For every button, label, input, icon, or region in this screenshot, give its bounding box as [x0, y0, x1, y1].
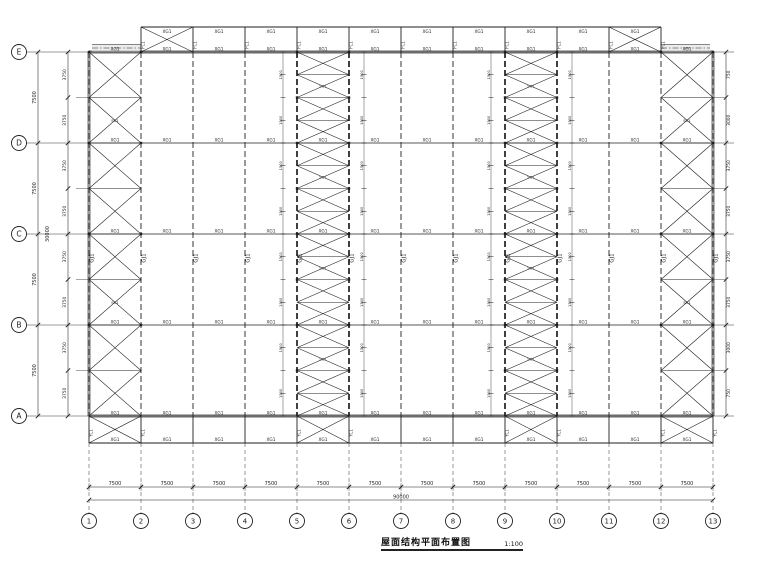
- svg-text:3750: 3750: [62, 251, 68, 262]
- svg-text:XG1: XG1: [318, 410, 327, 416]
- svg-text:XG1: XG1: [682, 228, 691, 234]
- svg-text:XG1: XG1: [162, 46, 171, 52]
- roof-plan-svg: XG1XG1XG1XG1XG1XG1XG1XG1XG1XG1FC1FC1FC1F…: [0, 0, 760, 567]
- svg-text:90000: 90000: [393, 495, 409, 501]
- svg-text:1500: 1500: [568, 115, 572, 125]
- svg-text:3750: 3750: [726, 296, 732, 307]
- svg-text:3750: 3750: [726, 205, 732, 216]
- svg-text:B: B: [16, 321, 21, 330]
- svg-text:GJ1: GJ1: [194, 253, 200, 262]
- svg-text:YC1: YC1: [349, 429, 354, 438]
- svg-text:GJ1: GJ1: [558, 253, 564, 262]
- svg-text:6: 6: [347, 518, 352, 526]
- svg-text:XG1: XG1: [318, 228, 327, 234]
- svg-text:GJ1: GJ1: [454, 253, 460, 262]
- drawing-title-block: 屋面结构平面布置图 1:100: [381, 535, 523, 551]
- svg-text:XG1: XG1: [162, 437, 171, 443]
- svg-text:3000: 3000: [726, 114, 732, 125]
- svg-text:XG1: XG1: [682, 46, 691, 52]
- svg-text:1500: 1500: [360, 160, 364, 170]
- svg-text:XG1: XG1: [526, 437, 535, 443]
- svg-text:XG1: XG1: [370, 319, 379, 325]
- svg-text:XG1: XG1: [526, 46, 535, 52]
- svg-text:1500: 1500: [487, 342, 491, 352]
- svg-text:XG1: XG1: [578, 437, 587, 443]
- svg-text:YC1: YC1: [661, 429, 666, 438]
- svg-text:XG1: XG1: [162, 137, 171, 143]
- svg-text:3: 3: [191, 518, 195, 526]
- svg-text:7500: 7500: [681, 481, 694, 487]
- svg-text:1500: 1500: [360, 115, 364, 125]
- svg-text:7500: 7500: [577, 481, 590, 487]
- svg-text:SC1: SC1: [527, 175, 535, 180]
- svg-text:1500: 1500: [568, 297, 572, 307]
- svg-text:XG1: XG1: [474, 437, 483, 443]
- svg-text:XG1: XG1: [474, 46, 483, 52]
- svg-text:XG1: XG1: [474, 137, 483, 143]
- svg-text:XG1: XG1: [266, 319, 275, 325]
- svg-text:3750: 3750: [62, 387, 68, 398]
- svg-text:XG1: XG1: [578, 410, 587, 416]
- svg-text:XG1: XG1: [422, 228, 431, 234]
- svg-text:GJ1: GJ1: [662, 253, 668, 262]
- svg-text:SC1: SC1: [319, 266, 327, 271]
- svg-text:XG1: XG1: [370, 437, 379, 443]
- svg-text:XG1: XG1: [370, 228, 379, 234]
- svg-text:XG1: XG1: [318, 319, 327, 325]
- svg-text:7500: 7500: [32, 91, 38, 104]
- svg-text:YC1: YC1: [141, 429, 146, 438]
- svg-text:XG1: XG1: [214, 437, 223, 443]
- svg-text:7500: 7500: [525, 481, 538, 487]
- svg-text:GJ1: GJ1: [350, 253, 356, 262]
- svg-text:XG1: XG1: [526, 319, 535, 325]
- svg-text:XG1: XG1: [578, 46, 587, 52]
- svg-text:XG1: XG1: [474, 319, 483, 325]
- svg-text:XG1: XG1: [214, 319, 223, 325]
- svg-text:SC1: SC1: [683, 300, 691, 305]
- svg-text:1500: 1500: [568, 251, 572, 261]
- svg-text:GJ1: GJ1: [246, 253, 252, 262]
- svg-text:3750: 3750: [726, 251, 732, 262]
- drawing-title: 屋面结构平面布置图: [381, 535, 471, 548]
- svg-text:FC1: FC1: [141, 41, 146, 49]
- svg-text:YC1: YC1: [89, 429, 94, 438]
- svg-text:FC1: FC1: [609, 41, 614, 49]
- svg-text:XG1: XG1: [578, 137, 587, 143]
- svg-text:XG1: XG1: [474, 29, 483, 35]
- svg-text:FC1: FC1: [297, 41, 302, 49]
- svg-text:SC1: SC1: [527, 266, 535, 271]
- svg-text:FC1: FC1: [505, 41, 510, 49]
- svg-text:XG1: XG1: [630, 137, 639, 143]
- svg-text:XG1: XG1: [266, 228, 275, 234]
- svg-text:1500: 1500: [360, 342, 364, 352]
- svg-text:XG1: XG1: [526, 137, 535, 143]
- svg-text:1500: 1500: [360, 206, 364, 216]
- drawing-scale: 1:100: [504, 540, 523, 548]
- svg-text:XG1: XG1: [110, 46, 119, 52]
- svg-text:3750: 3750: [62, 114, 68, 125]
- svg-text:FC1: FC1: [245, 41, 250, 49]
- svg-text:YC1: YC1: [297, 429, 302, 438]
- svg-text:1500: 1500: [279, 297, 283, 307]
- svg-text:XG1: XG1: [578, 228, 587, 234]
- svg-text:SC1: SC1: [319, 84, 327, 89]
- svg-text:XG1: XG1: [422, 437, 431, 443]
- svg-text:3750: 3750: [62, 160, 68, 171]
- svg-text:1500: 1500: [360, 297, 364, 307]
- svg-text:XG1: XG1: [266, 29, 275, 35]
- svg-text:XG1: XG1: [682, 410, 691, 416]
- svg-text:XG1: XG1: [162, 228, 171, 234]
- svg-text:7: 7: [399, 518, 403, 526]
- svg-text:XG1: XG1: [630, 437, 639, 443]
- svg-text:XG1: XG1: [422, 137, 431, 143]
- svg-text:XG1: XG1: [422, 410, 431, 416]
- svg-text:8: 8: [451, 518, 455, 526]
- svg-text:SC1: SC1: [527, 84, 535, 89]
- svg-text:1: 1: [87, 518, 91, 526]
- svg-text:XG1: XG1: [630, 319, 639, 325]
- svg-text:E: E: [17, 48, 22, 57]
- lower-band: XG1XG1XG1XG1XG1XG1XG1XG1XG1XG1XG1XG1YC1Y…: [89, 416, 718, 443]
- svg-text:1500: 1500: [568, 342, 572, 352]
- svg-text:XG1: XG1: [318, 46, 327, 52]
- svg-text:FC1: FC1: [453, 41, 458, 49]
- svg-text:XG1: XG1: [266, 46, 275, 52]
- svg-text:XG1: XG1: [422, 46, 431, 52]
- svg-text:1500: 1500: [279, 206, 283, 216]
- svg-text:FC1: FC1: [557, 41, 562, 49]
- svg-text:1500: 1500: [568, 388, 572, 398]
- svg-text:XG1: XG1: [214, 46, 223, 52]
- svg-text:XG1: XG1: [162, 319, 171, 325]
- svg-text:1500: 1500: [279, 69, 283, 79]
- svg-text:FC1: FC1: [193, 41, 198, 49]
- svg-text:7500: 7500: [317, 481, 330, 487]
- svg-text:XG1: XG1: [110, 228, 119, 234]
- svg-text:D: D: [16, 139, 22, 148]
- svg-text:XG1: XG1: [474, 410, 483, 416]
- svg-text:XG1: XG1: [630, 228, 639, 234]
- svg-text:XG1: XG1: [110, 319, 119, 325]
- svg-text:30000: 30000: [45, 226, 51, 242]
- svg-text:12: 12: [657, 518, 666, 526]
- svg-text:XG1: XG1: [422, 319, 431, 325]
- svg-text:GJ1: GJ1: [506, 253, 512, 262]
- frame-labels: GJ1GJ1GJ1GJ1GJ1GJ1GJ1GJ1GJ1GJ1GJ1GJ1GJ1: [90, 253, 720, 262]
- svg-text:XG1: XG1: [266, 437, 275, 443]
- svg-text:SC1: SC1: [683, 118, 691, 123]
- svg-text:XG1: XG1: [526, 410, 535, 416]
- svg-text:GJ1: GJ1: [298, 253, 304, 262]
- svg-text:A: A: [16, 412, 22, 421]
- svg-text:7500: 7500: [32, 364, 38, 377]
- svg-text:1500: 1500: [487, 297, 491, 307]
- svg-text:XG1: XG1: [162, 410, 171, 416]
- svg-text:XG1: XG1: [370, 46, 379, 52]
- svg-text:XG1: XG1: [214, 228, 223, 234]
- svg-text:GJ1: GJ1: [142, 253, 148, 262]
- svg-text:750: 750: [726, 70, 732, 79]
- svg-text:10: 10: [553, 518, 562, 526]
- svg-text:XG1: XG1: [578, 29, 587, 35]
- svg-text:FC1: FC1: [401, 41, 406, 49]
- svg-text:SC1: SC1: [111, 300, 119, 305]
- svg-text:XG1: XG1: [110, 137, 119, 143]
- svg-text:FC1: FC1: [661, 41, 666, 49]
- svg-text:1500: 1500: [568, 160, 572, 170]
- svg-text:SC1: SC1: [111, 118, 119, 123]
- svg-text:XG1: XG1: [526, 228, 535, 234]
- svg-text:1500: 1500: [487, 388, 491, 398]
- svg-text:XG1: XG1: [318, 29, 327, 35]
- svg-text:4: 4: [243, 518, 248, 526]
- svg-text:XG1: XG1: [318, 437, 327, 443]
- svg-text:XG1: XG1: [214, 410, 223, 416]
- svg-text:XG1: XG1: [214, 29, 223, 35]
- svg-text:1500: 1500: [360, 251, 364, 261]
- svg-text:1500: 1500: [568, 69, 572, 79]
- svg-text:XG1: XG1: [578, 319, 587, 325]
- svg-text:XG1: XG1: [682, 137, 691, 143]
- svg-text:3750: 3750: [62, 69, 68, 80]
- svg-text:XG1: XG1: [370, 137, 379, 143]
- svg-text:9: 9: [503, 518, 507, 526]
- svg-text:1500: 1500: [279, 342, 283, 352]
- svg-text:7500: 7500: [109, 481, 122, 487]
- svg-text:FC1: FC1: [349, 41, 354, 49]
- svg-text:XG1: XG1: [266, 137, 275, 143]
- svg-text:XG1: XG1: [110, 410, 119, 416]
- svg-text:7500: 7500: [213, 481, 226, 487]
- grid-bubbles-left: EDCBA: [12, 45, 27, 424]
- svg-text:7500: 7500: [265, 481, 278, 487]
- svg-text:XG1: XG1: [682, 319, 691, 325]
- svg-text:XG1: XG1: [162, 29, 171, 35]
- svg-text:1500: 1500: [487, 206, 491, 216]
- svg-text:1500: 1500: [279, 115, 283, 125]
- svg-text:1500: 1500: [279, 160, 283, 170]
- svg-text:1500: 1500: [360, 388, 364, 398]
- svg-text:1500: 1500: [487, 251, 491, 261]
- svg-text:XG1: XG1: [110, 437, 119, 443]
- svg-text:XG1: XG1: [370, 29, 379, 35]
- svg-text:1500: 1500: [360, 69, 364, 79]
- svg-text:GJ1: GJ1: [402, 253, 408, 262]
- svg-text:XG1: XG1: [630, 46, 639, 52]
- svg-text:7500: 7500: [161, 481, 174, 487]
- svg-text:XG1: XG1: [474, 228, 483, 234]
- dimension-bottom: 7500750075007500750075007500750075007500…: [87, 481, 715, 502]
- svg-text:7500: 7500: [473, 481, 486, 487]
- svg-text:7500: 7500: [32, 182, 38, 195]
- svg-text:1500: 1500: [487, 115, 491, 125]
- svg-text:3000: 3000: [726, 342, 732, 353]
- svg-text:YC1: YC1: [713, 429, 718, 438]
- svg-text:1500: 1500: [487, 69, 491, 79]
- svg-text:3750: 3750: [62, 296, 68, 307]
- svg-text:SC1: SC1: [319, 175, 327, 180]
- svg-text:GJ1: GJ1: [714, 253, 720, 262]
- grid-bubbles-bottom: 12345678910111213: [82, 512, 721, 529]
- svg-text:2: 2: [139, 518, 143, 526]
- svg-text:5: 5: [295, 518, 299, 526]
- cad-drawing: XG1XG1XG1XG1XG1XG1XG1XG1XG1XG1FC1FC1FC1F…: [0, 0, 760, 567]
- svg-text:1500: 1500: [568, 206, 572, 216]
- svg-text:XG1: XG1: [682, 437, 691, 443]
- svg-text:XG1: XG1: [422, 29, 431, 35]
- svg-text:XG1: XG1: [630, 29, 639, 35]
- svg-text:7500: 7500: [369, 481, 382, 487]
- svg-text:XG1: XG1: [214, 137, 223, 143]
- svg-text:750: 750: [726, 389, 732, 398]
- svg-text:7500: 7500: [629, 481, 642, 487]
- svg-text:XG1: XG1: [630, 410, 639, 416]
- svg-text:SC1: SC1: [319, 357, 327, 362]
- svg-text:XG1: XG1: [526, 29, 535, 35]
- svg-text:3750: 3750: [62, 342, 68, 353]
- svg-text:7500: 7500: [421, 481, 434, 487]
- svg-text:1500: 1500: [279, 251, 283, 261]
- svg-text:1500: 1500: [487, 160, 491, 170]
- svg-text:XG1: XG1: [370, 410, 379, 416]
- svg-text:YC1: YC1: [505, 429, 510, 438]
- svg-text:GJ1: GJ1: [90, 253, 96, 262]
- svg-text:13: 13: [709, 518, 718, 526]
- svg-text:1500: 1500: [279, 388, 283, 398]
- svg-text:C: C: [16, 230, 21, 239]
- svg-text:YC1: YC1: [557, 429, 562, 438]
- svg-text:11: 11: [605, 518, 614, 526]
- svg-text:XG1: XG1: [266, 410, 275, 416]
- svg-text:7500: 7500: [32, 273, 38, 286]
- svg-text:XG1: XG1: [318, 137, 327, 143]
- svg-text:SC1: SC1: [527, 357, 535, 362]
- svg-text:GJ1: GJ1: [610, 253, 616, 262]
- svg-text:3750: 3750: [62, 205, 68, 216]
- svg-text:3750: 3750: [726, 160, 732, 171]
